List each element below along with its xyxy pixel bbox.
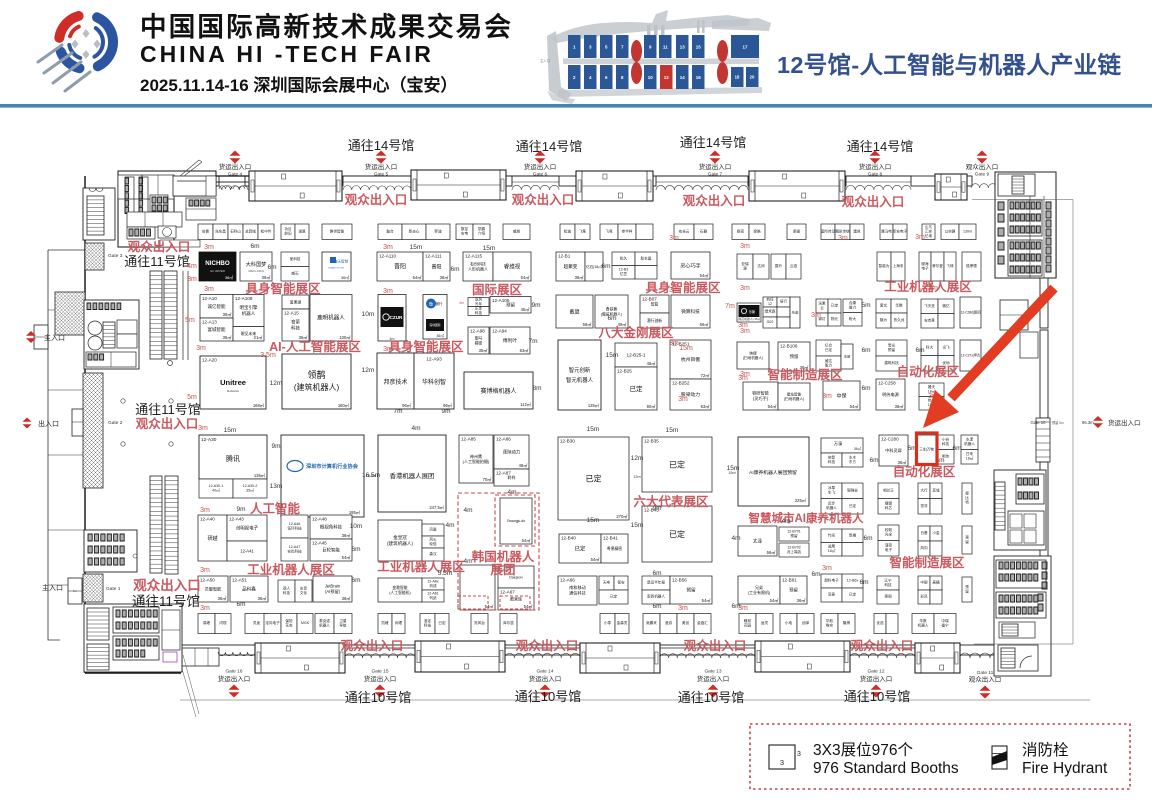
svg-text:4m: 4m <box>411 425 420 432</box>
svg-text:摆渡: 摆渡 <box>885 501 893 506</box>
svg-text:大科国梦: 大科国梦 <box>246 260 268 268</box>
svg-text:枢密: 枢密 <box>737 228 745 233</box>
svg-text:飞天圣: 飞天圣 <box>924 303 935 308</box>
svg-text:通往11号馆: 通往11号馆 <box>135 402 201 417</box>
svg-text:12-A93: 12-A93 <box>426 357 442 363</box>
svg-text:腾讯: 腾讯 <box>226 454 240 463</box>
svg-text:12-A45: 12-A45 <box>312 541 327 546</box>
svg-text:7m: 7m <box>725 303 735 310</box>
svg-text:晋阳: 晋阳 <box>394 263 406 271</box>
svg-text:飞隼: 飞隼 <box>579 228 587 233</box>
svg-text:国际展区: 国际展区 <box>472 283 523 297</box>
svg-text:35㎡: 35㎡ <box>223 334 233 340</box>
svg-text:(灵巧手): (灵巧手) <box>753 395 769 402</box>
svg-text:货运出入口: 货运出入口 <box>859 162 892 171</box>
svg-text:室所传动: 室所传动 <box>821 228 836 233</box>
svg-text:吴鹏来: 吴鹏来 <box>646 620 657 625</box>
svg-text:机器人: 机器人 <box>964 441 975 446</box>
svg-text:科技: 科技 <box>942 441 950 446</box>
svg-text:12-A50: 12-A50 <box>200 578 215 583</box>
svg-text:微亿: 微亿 <box>942 303 950 308</box>
svg-text:Gwangju-do: Gwangju-do <box>507 519 525 523</box>
svg-text:12-A48: 12-A48 <box>312 517 327 522</box>
svg-text:6m: 6m <box>351 577 360 584</box>
svg-text:威石: 威石 <box>291 270 299 275</box>
svg-text:观众出入口: 观众出入口 <box>851 638 914 653</box>
svg-text:12-B701: 12-B701 <box>787 529 801 533</box>
svg-text:6m: 6m <box>351 546 360 553</box>
svg-text:智篮: 智篮 <box>651 301 659 306</box>
svg-text:机器人: 机器人 <box>918 622 929 627</box>
svg-text:亮风台: 亮风台 <box>474 620 485 625</box>
svg-text:12-A13: 12-A13 <box>202 320 217 325</box>
svg-text:12-A30: 12-A30 <box>201 437 217 443</box>
svg-text:MGK: MGK <box>301 621 310 625</box>
svg-text:小谷: 小谷 <box>942 437 950 442</box>
svg-text:12-A67: 12-A67 <box>500 590 515 595</box>
svg-text:3m: 3m <box>822 393 832 400</box>
svg-text:轮倍: 轮倍 <box>429 541 437 546</box>
svg-text:14: 14 <box>680 75 686 80</box>
svg-text:乐聚: 乐聚 <box>749 309 756 314</box>
svg-text:食铁兽: 食铁兽 <box>606 306 618 311</box>
svg-text:已定: 已定 <box>849 503 857 508</box>
svg-text:竹间: 竹间 <box>828 532 836 537</box>
svg-text:亿笠: 亿笠 <box>620 271 628 276</box>
svg-text:12-A98: 12-A98 <box>470 329 485 334</box>
svg-text:6m: 6m <box>861 347 870 354</box>
svg-text:36㎡: 36㎡ <box>262 274 272 280</box>
svg-text:漫厚: 漫厚 <box>298 228 306 233</box>
svg-text:12-A86: 12-A86 <box>496 437 511 442</box>
svg-text:金皇冠: 金皇冠 <box>393 534 407 541</box>
svg-text:观人: 观人 <box>283 585 291 590</box>
svg-text:睿尔曼: 睿尔曼 <box>932 263 943 268</box>
svg-text:科芯: 科芯 <box>885 505 893 510</box>
svg-text:3m: 3m <box>669 287 679 294</box>
svg-text:54㎡: 54㎡ <box>770 597 780 603</box>
svg-text:货运出入口: 货运出入口 <box>860 674 893 683</box>
svg-text:聆祥: 聆祥 <box>508 474 516 480</box>
svg-text:甘来: 甘来 <box>966 451 974 456</box>
svg-text:12-A47: 12-A47 <box>289 545 301 549</box>
svg-text:主入口: 主入口 <box>42 583 63 592</box>
svg-text:预留 6m: 预留 6m <box>1052 420 1064 425</box>
svg-text:Gate 11: Gate 11 <box>977 670 994 676</box>
svg-text:Gate 3: Gate 3 <box>108 253 123 259</box>
svg-text:凯鹏: 凯鹏 <box>478 226 486 231</box>
svg-text:已定: 已定 <box>825 347 833 352</box>
svg-text:3m: 3m <box>196 345 206 352</box>
svg-text:21㎡: 21㎡ <box>254 334 264 340</box>
svg-text:Gate 4: Gate 4 <box>228 172 243 178</box>
svg-text:7m: 7m <box>393 408 402 415</box>
svg-text:保险: 保险 <box>285 618 293 623</box>
svg-text:预留: 预留 <box>686 587 696 594</box>
svg-text:薄荷: 薄荷 <box>885 543 893 548</box>
svg-text:Unitree: Unitree <box>220 378 246 387</box>
svg-text:变歌智能: 变歌智能 <box>392 585 407 590</box>
svg-text:亿电: 亿电 <box>925 233 933 238</box>
svg-text:12-A10: 12-A10 <box>202 296 217 301</box>
svg-text:预: 预 <box>965 534 969 539</box>
svg-text:概视角科技: 概视角科技 <box>320 524 343 531</box>
svg-text:安杰莱: 安杰莱 <box>924 317 935 322</box>
svg-text:人工智能: 人工智能 <box>250 501 301 516</box>
svg-text:180㎡: 180㎡ <box>338 402 350 408</box>
svg-text:12-A110: 12-A110 <box>379 254 396 259</box>
svg-text:水漾: 水漾 <box>966 437 974 442</box>
svg-text:智元创新: 智元创新 <box>569 366 591 374</box>
svg-text:3m: 3m <box>740 243 750 250</box>
svg-text:蓝果湖: 蓝果湖 <box>290 299 302 304</box>
svg-text:威朋: 威朋 <box>513 228 521 233</box>
svg-text:3m: 3m <box>198 425 208 432</box>
svg-text:12-B6x: 12-B6x <box>847 579 859 583</box>
svg-text:12-B25: 12-B25 <box>617 369 632 374</box>
svg-text:定向电子: 定向电子 <box>265 620 280 625</box>
svg-text:AI康养机器人展团预留: AI康养机器人展团预留 <box>749 469 797 476</box>
svg-text:森汉: 森汉 <box>429 551 437 556</box>
svg-text:创明视电子: 创明视电子 <box>236 525 259 532</box>
svg-text:货运出入口: 货运出入口 <box>699 162 732 171</box>
svg-text:(AI预留): (AI预留) <box>325 588 341 595</box>
svg-text:Gate 6: Gate 6 <box>533 172 548 178</box>
svg-text:乙实: 乙实 <box>925 228 933 233</box>
svg-text:微算科技: 微算科技 <box>681 308 700 315</box>
svg-text:太泽: 太泽 <box>753 538 763 545</box>
svg-text:12-A43: 12-A43 <box>229 517 244 522</box>
svg-text:12-A30-1: 12-A30-1 <box>209 484 224 488</box>
svg-text:HUAWO HOTEL: HUAWO HOTEL <box>328 267 345 270</box>
svg-text:观众出入口: 观众出入口 <box>684 638 747 653</box>
svg-text:达阔: 达阔 <box>757 263 765 268</box>
svg-text:相芯王: 相芯王 <box>883 487 894 492</box>
svg-text:预留: 预留 <box>790 533 798 538</box>
svg-text:股力: 股力 <box>825 362 833 367</box>
svg-text:华航: 华航 <box>826 618 834 623</box>
svg-text:6m: 6m <box>250 243 259 250</box>
svg-text:宝光: 宝光 <box>888 342 896 347</box>
svg-text:具身智能展区: 具身智能展区 <box>644 280 721 295</box>
svg-text:35㎡: 35㎡ <box>479 347 489 353</box>
svg-text:观众出入口: 观众出入口 <box>136 416 199 431</box>
svg-text:退忌半年报: 退忌半年报 <box>647 580 665 585</box>
svg-text:海沃智慧: 海沃智慧 <box>334 259 349 264</box>
svg-text:戴盟: 戴盟 <box>569 308 579 315</box>
svg-text:36㎡: 36㎡ <box>218 595 228 601</box>
svg-text:Gate 16: Gate 16 <box>225 669 242 675</box>
svg-text:36㎡: 36㎡ <box>440 274 450 280</box>
svg-text:6m: 6m <box>601 263 610 270</box>
svg-text:40㎡: 40㎡ <box>212 487 220 492</box>
svg-text:石器: 石器 <box>700 229 708 233</box>
svg-text:3: 3 <box>797 751 801 758</box>
svg-text:预留: 预留 <box>790 353 799 360</box>
svg-text:微行: 微行 <box>436 301 443 306</box>
svg-text:135㎡: 135㎡ <box>588 402 600 408</box>
svg-text:迈步: 迈步 <box>828 501 836 506</box>
svg-text:5m: 5m <box>185 317 195 324</box>
svg-text:韩国机器人: 韩国机器人 <box>472 549 535 564</box>
svg-text:参半样: 参半样 <box>622 228 633 233</box>
svg-text:隆博: 隆博 <box>843 620 851 625</box>
svg-text:12-A41: 12-A41 <box>240 548 254 553</box>
svg-text:石科山: 石科山 <box>230 228 241 233</box>
svg-text:12-B41: 12-B41 <box>603 536 618 541</box>
svg-text:观众出入口: 观众出入口 <box>969 675 1002 684</box>
svg-text:12-B702: 12-B702 <box>787 545 801 549</box>
svg-text:预留: 预留 <box>789 587 798 594</box>
svg-text:磐世智能: 磐世智能 <box>330 228 345 233</box>
svg-text:G02: G02 <box>767 320 774 324</box>
svg-text:15m: 15m <box>410 244 423 251</box>
svg-text:54㎡: 54㎡ <box>850 403 860 409</box>
svg-text:松中件: 松中件 <box>261 228 272 233</box>
svg-text:科技: 科技 <box>291 325 300 332</box>
svg-text:深素: 深素 <box>818 300 826 305</box>
svg-text:63㎡: 63㎡ <box>520 347 530 353</box>
svg-text:电子: 电子 <box>885 547 893 552</box>
svg-text:Gate 10: Gate 10 <box>1031 420 1047 425</box>
svg-text:3m: 3m <box>822 565 832 572</box>
svg-text:爱文: 爱文 <box>880 303 888 308</box>
svg-text:粉大: 粉大 <box>849 316 857 321</box>
svg-text:16: 16 <box>696 75 702 80</box>
svg-text:12-A111: 12-A111 <box>425 254 442 259</box>
svg-text:6m: 6m <box>267 264 276 271</box>
svg-text:新焱心: 新焱心 <box>409 228 420 233</box>
svg-text:微: 微 <box>429 301 433 307</box>
svg-text:5m: 5m <box>187 394 197 401</box>
svg-text:6m: 6m <box>450 266 459 273</box>
svg-text:巡鹰: 巡鹰 <box>828 544 836 549</box>
svg-text:3m: 3m <box>838 235 848 242</box>
svg-text:中国国际高新技术成果交易会: 中国国际高新技术成果交易会 <box>140 12 513 42</box>
svg-text:12-A6x: 12-A6x <box>427 579 439 583</box>
svg-text:唯实: 唯实 <box>826 622 834 627</box>
svg-text:神州鹰: 神州鹰 <box>470 453 482 459</box>
svg-text:6m: 6m <box>652 570 661 577</box>
svg-text:睡前: 睡前 <box>744 618 752 623</box>
svg-text:12-A46: 12-A46 <box>289 522 301 526</box>
svg-text:通往11号馆: 通往11号馆 <box>124 254 190 269</box>
svg-text:中科灵犀: 中科灵犀 <box>885 447 902 454</box>
svg-text:Fire Hydrant: Fire Hydrant <box>1022 760 1108 777</box>
svg-text:花夹: 花夹 <box>285 622 293 627</box>
svg-text:Gate 7: Gate 7 <box>708 172 723 178</box>
svg-text:36㎡: 36㎡ <box>895 403 905 409</box>
svg-text:12: 12 <box>768 302 772 306</box>
svg-text:NICHBO: NICHBO <box>205 260 230 267</box>
svg-text:通往10号馆: 通往10号馆 <box>345 690 411 705</box>
svg-text:15m: 15m <box>679 345 693 352</box>
svg-text:观众出入口: 观众出入口 <box>512 192 575 207</box>
svg-text:112㎡: 112㎡ <box>520 401 532 407</box>
svg-text:195㎡: 195㎡ <box>349 509 361 515</box>
svg-text:香港机器人展团: 香港机器人展团 <box>390 471 435 480</box>
svg-text:72㎡: 72㎡ <box>701 372 711 378</box>
svg-text:奥创: 奥创 <box>682 620 690 625</box>
svg-text:16.5m: 16.5m <box>362 472 380 479</box>
svg-text:傅利叶: 傅利叶 <box>503 337 518 344</box>
svg-text:兆东昌: 兆东昌 <box>215 228 226 233</box>
svg-text:飞熊: 飞熊 <box>946 263 954 268</box>
svg-text:精密: 精密 <box>475 340 483 345</box>
svg-text:杭州目俄: 杭州目俄 <box>681 356 700 363</box>
svg-text:247.5㎡: 247.5㎡ <box>429 504 444 510</box>
svg-text:大行: 大行 <box>920 487 928 492</box>
svg-text:机器人: 机器人 <box>242 310 256 317</box>
svg-text:六大代表展区: 六大代表展区 <box>633 494 709 509</box>
svg-text:3m: 3m <box>204 286 214 293</box>
svg-text:安电: 安电 <box>461 231 469 236</box>
svg-text:品科鑫: 品科鑫 <box>242 586 256 593</box>
svg-text:35㎡: 35㎡ <box>246 487 254 492</box>
svg-text:东方: 东方 <box>849 459 857 464</box>
svg-text:3X3展位976个: 3X3展位976个 <box>813 741 913 759</box>
svg-text:乐享: 乐享 <box>475 305 483 310</box>
svg-text:货运出入口: 货运出入口 <box>1108 418 1141 427</box>
svg-text:万濠: 万濠 <box>834 440 843 447</box>
svg-text:驭风: 驭风 <box>475 297 483 301</box>
svg-text:深圳国际: 深圳国际 <box>429 323 440 327</box>
svg-text:前旧: 前旧 <box>284 231 292 236</box>
svg-text:12-A85: 12-A85 <box>461 437 476 442</box>
svg-text:货运出入口: 货运出入口 <box>364 674 397 683</box>
svg-text:有份科技: 有份科技 <box>470 260 486 266</box>
svg-text:36㎡: 36㎡ <box>342 595 352 601</box>
svg-text:12-B61: 12-B61 <box>782 578 797 583</box>
svg-text:6m: 6m <box>73 589 78 593</box>
svg-text:54㎡: 54㎡ <box>768 403 778 409</box>
svg-text:Gate 14: Gate 14 <box>536 669 553 675</box>
svg-text:聚合: 聚合 <box>386 228 394 233</box>
svg-text:36㎡: 36㎡ <box>225 275 233 280</box>
svg-text:比: 比 <box>965 495 969 500</box>
svg-text:135㎡: 135㎡ <box>254 472 266 478</box>
svg-text:56㎡: 56㎡ <box>767 549 777 555</box>
svg-text:12m: 12m <box>633 475 640 479</box>
svg-text:12-A66: 12-A66 <box>560 578 575 583</box>
svg-text:976 Standard Booths: 976 Standard Booths <box>813 760 959 777</box>
svg-text:通往10号馆: 通往10号馆 <box>515 689 581 704</box>
svg-text:小零: 小零 <box>604 620 612 625</box>
svg-text:36㎡: 36㎡ <box>258 595 268 601</box>
svg-text:4m: 4m <box>731 535 740 542</box>
svg-text:12-B106: 12-B106 <box>780 344 798 349</box>
svg-text:逐际动力: 逐际动力 <box>503 449 521 456</box>
svg-text:36㎡: 36㎡ <box>341 275 349 280</box>
svg-text:12-B25-1: 12-B25-1 <box>627 353 646 358</box>
svg-text:CHINA HI -TECH FAIR: CHINA HI -TECH FAIR <box>140 41 434 67</box>
svg-text:Gate 13: Gate 13 <box>704 669 721 675</box>
svg-text:中保: 中保 <box>836 392 846 399</box>
svg-text:12-A40: 12-A40 <box>200 517 215 522</box>
svg-text:梁皓: 梁皓 <box>753 228 761 233</box>
svg-text:观众出入口: 观众出入口 <box>516 638 579 653</box>
svg-text:具身智能展区: 具身智能展区 <box>244 281 321 296</box>
svg-text:亿石|18㎡: 亿石|18㎡ <box>586 264 602 269</box>
svg-text:12-B3: 12-B3 <box>619 268 629 272</box>
svg-text:建凯: 建凯 <box>853 228 861 233</box>
svg-text:风向: 风向 <box>920 545 928 550</box>
svg-text:功巨: 功巨 <box>284 226 292 231</box>
svg-text:庄意: 庄意 <box>300 585 308 590</box>
svg-text:45㎡: 45㎡ <box>647 360 657 366</box>
svg-text:(建筑机器人): (建筑机器人) <box>294 382 340 392</box>
svg-text:已定: 已定 <box>669 529 685 539</box>
svg-text:云: 云 <box>820 306 824 310</box>
svg-text:12号馆-人工智能与机器人产业链: 12号馆-人工智能与机器人产业链 <box>777 51 1121 78</box>
svg-text:9m: 9m <box>652 505 661 512</box>
svg-text:15m: 15m <box>587 517 600 524</box>
svg-text:机器人: 机器人 <box>319 622 330 627</box>
svg-text:(瑞芯机器人) 35㎡: (瑞芯机器人) 35㎡ <box>738 317 761 321</box>
svg-text:灵心巧手: 灵心巧手 <box>680 261 701 269</box>
svg-text:54㎡: 54㎡ <box>413 274 423 280</box>
svg-text:煜禾森: 煜禾森 <box>765 309 776 314</box>
svg-text:15m: 15m <box>587 426 600 433</box>
svg-text:观众出入口: 观众出入口 <box>966 162 999 171</box>
svg-text:GC WATER: GC WATER <box>210 269 225 273</box>
svg-text:6m: 6m <box>869 457 878 464</box>
svg-text:12-A94: 12-A94 <box>492 329 507 334</box>
svg-text:预: 预 <box>965 584 969 589</box>
svg-text:Gate 15: Gate 15 <box>371 669 388 675</box>
svg-text:华科创智: 华科创智 <box>422 378 446 386</box>
svg-text:通往10号馆: 通往10号馆 <box>678 690 744 705</box>
svg-text:金森灵: 金森灵 <box>617 620 628 625</box>
svg-text:预留: 预留 <box>506 301 515 308</box>
svg-text:酷果瑞: 酷果瑞 <box>510 596 522 601</box>
svg-text:智元机器人: 智元机器人 <box>566 376 594 384</box>
svg-text:晟马电: 晟马电 <box>881 228 892 233</box>
svg-text:具身智能展区: 具身智能展区 <box>387 339 464 354</box>
svg-text:辽宁: 辽宁 <box>884 577 892 582</box>
svg-text:映搏: 映搏 <box>749 350 757 355</box>
svg-text:御马: 御马 <box>475 335 483 340</box>
svg-text:Gate 12: Gate 12 <box>867 669 884 675</box>
svg-text:3m: 3m <box>811 312 821 319</box>
svg-text:(人工智能拍摄): (人工智能拍摄) <box>463 458 490 464</box>
svg-text:54㎡: 54㎡ <box>700 272 710 278</box>
svg-text:Robotics: Robotics <box>227 389 239 393</box>
svg-text:通往11号馆: 通往11号馆 <box>132 594 200 609</box>
svg-text:诚亿智能: 诚亿智能 <box>208 303 226 310</box>
svg-text:270㎡: 270㎡ <box>616 513 628 519</box>
svg-text:4m: 4m <box>187 263 197 270</box>
svg-text:JetBrain: JetBrain <box>325 584 341 589</box>
svg-text:(人工智能机): (人工智能机) <box>389 590 411 595</box>
svg-text:三生|万物: 三生|万物 <box>919 447 934 452</box>
svg-text:18㎡: 18㎡ <box>966 456 974 461</box>
svg-text:观众出入口: 观众出入口 <box>683 193 746 208</box>
svg-text:漫游: 漫游 <box>665 620 673 625</box>
svg-text:12m: 12m <box>631 455 644 462</box>
svg-text:普力: 普力 <box>849 305 857 310</box>
svg-text:兄弟: 兄弟 <box>755 584 763 590</box>
svg-text:15m: 15m <box>727 465 740 472</box>
svg-text:12-B30: 12-B30 <box>560 439 575 444</box>
svg-text:宴城智能: 宴城智能 <box>208 326 226 333</box>
svg-text:已定: 已定 <box>849 592 857 597</box>
svg-text:觉非: 觉非 <box>920 503 928 508</box>
svg-text:4m: 4m <box>463 558 472 565</box>
svg-text:Gate 1: Gate 1 <box>106 586 121 592</box>
svg-text:13: 13 <box>680 45 686 50</box>
svg-text:3m: 3m <box>200 567 210 574</box>
